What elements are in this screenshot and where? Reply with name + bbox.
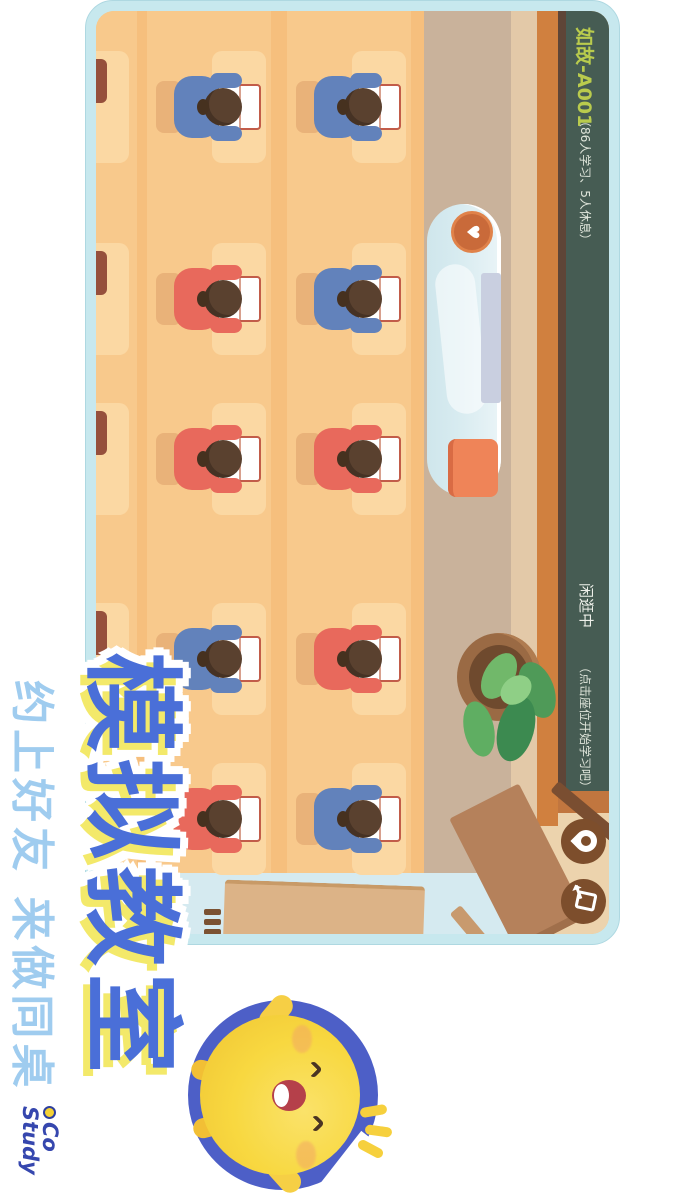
student-head [204, 88, 242, 126]
brand-line2: Study [20, 1106, 40, 1175]
empty-chair-back [96, 611, 107, 655]
heart-icon: ♥ [462, 224, 482, 239]
desk-seat[interactable] [288, 243, 406, 355]
student-hair-bun [197, 291, 209, 307]
desk-seat[interactable] [288, 51, 406, 163]
map-pin-icon [570, 825, 601, 856]
student-hair-bun [197, 99, 209, 115]
empty-chair-back [96, 59, 107, 103]
student-hair-bun [337, 811, 349, 827]
brand-logo: Co Study [20, 1106, 60, 1175]
room-stats-label: （86人学习、5人休息） [577, 115, 594, 246]
status-hint-label: （点击座位开始学习吧） [577, 661, 594, 793]
student-head [204, 440, 242, 478]
brand-chick-icon [44, 1106, 57, 1119]
promo-page: 如故-A001 （86人学习、5人休息） 闲逛中 （点击座位开始学习吧） [0, 0, 675, 1200]
student-head [344, 280, 382, 318]
promo-title: 模拟教室 [68, 652, 213, 1080]
desk-seat[interactable] [96, 243, 129, 355]
student-head [344, 88, 382, 126]
landscape-scene: 如故-A001 （86人学习、5人休息） 闲逛中 （点击座位开始学习吧） [0, 0, 675, 1200]
podium-book [481, 273, 501, 403]
locate-button[interactable] [561, 819, 606, 864]
mascot-body [200, 1015, 360, 1175]
desk-seat[interactable] [148, 243, 266, 355]
empty-chair-back [96, 411, 107, 455]
room-name-label: 如故-A001 [572, 27, 599, 127]
corridor-table [223, 880, 425, 934]
mascot-mouth [272, 1080, 306, 1111]
desk-seat[interactable] [96, 403, 129, 515]
student-head [344, 640, 382, 678]
student-head [344, 800, 382, 838]
blackboard-ledge [558, 11, 566, 811]
mascot-tongue [274, 1084, 289, 1107]
student-hair-bun [337, 99, 349, 115]
mascot-blush [296, 1141, 316, 1169]
heart-badge: ♥ [451, 211, 493, 253]
student-hair-bun [337, 451, 349, 467]
empty-chair-back [96, 251, 107, 295]
student-hair-bun [197, 451, 209, 467]
desk-seat[interactable] [288, 763, 406, 875]
student-hair-bun [337, 291, 349, 307]
blackboard: 如故-A001 （86人学习、5人休息） 闲逛中 （点击座位开始学习吧） [566, 11, 609, 791]
student-head [344, 440, 382, 478]
desk-seat[interactable] [148, 51, 266, 163]
mascot-blush [292, 1025, 312, 1053]
desk-seat[interactable] [96, 51, 129, 163]
mascot-eye [304, 1060, 322, 1078]
desk-seat[interactable] [288, 603, 406, 715]
desk-seat[interactable] [288, 403, 406, 515]
student-hair-bun [337, 651, 349, 667]
mascot-eye [306, 1114, 324, 1132]
student-head [204, 280, 242, 318]
promo-subtitle: 约上好友 来做同桌 [4, 680, 68, 1092]
teacher-cushion [448, 439, 498, 497]
exit-button[interactable] [561, 879, 606, 924]
brand-line1: Co [40, 1122, 60, 1152]
desk-seat[interactable] [148, 403, 266, 515]
status-label: 闲逛中 [576, 583, 597, 628]
